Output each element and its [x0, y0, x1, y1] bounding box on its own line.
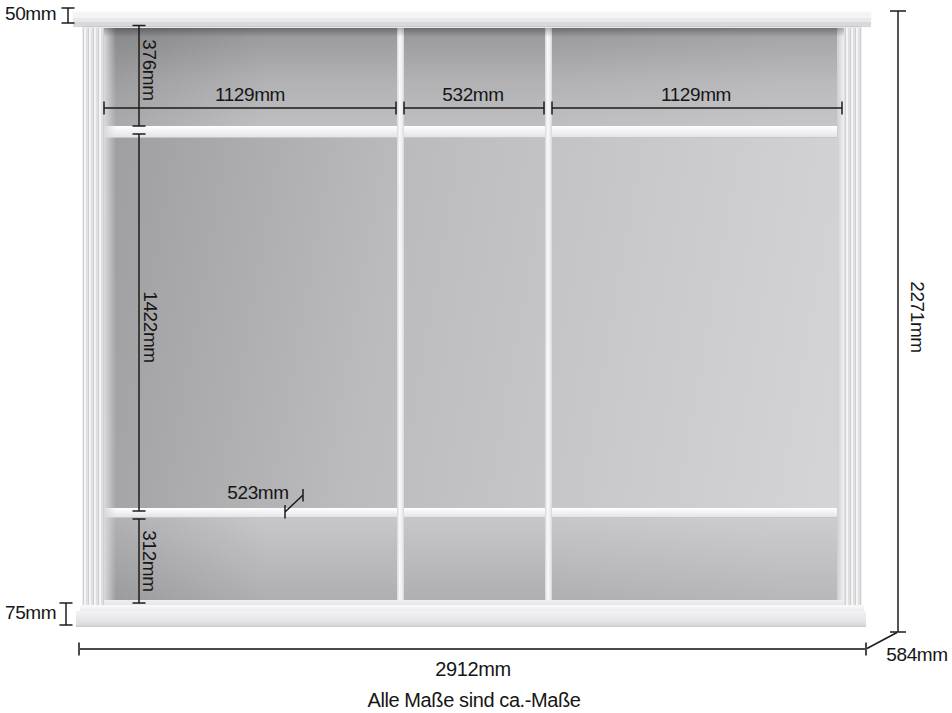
bottom-row-shading	[104, 518, 844, 600]
shelf-depth-label: 523mm	[227, 482, 288, 503]
under-crown-shadow	[104, 28, 844, 37]
interior-left-wall	[104, 28, 116, 600]
left-compartment-width-label: 1129mm	[215, 84, 285, 105]
middle-compartment-width-label: 532mm	[442, 84, 503, 105]
crown-height-label: 50mm	[5, 3, 56, 24]
total-width-label: 2912mm	[435, 659, 510, 680]
main-compartment-row	[104, 138, 844, 508]
bottom-compartment-height-label: 312mm	[139, 530, 160, 591]
wardrobe-dimension-diagram: 50mm 376mm 1129mm 532mm 1129mm 1422mm 52…	[0, 0, 952, 713]
lower-shelf	[104, 508, 844, 518]
top-compartment-height-label: 376mm	[139, 39, 160, 100]
dim-line-total-width	[79, 643, 866, 656]
dim-line-total-height	[890, 11, 906, 632]
right-compartment-width-label: 1129mm	[661, 84, 731, 105]
left-fluted-column	[83, 28, 104, 605]
plinth-height-label: 75mm	[5, 602, 56, 623]
top-row-shading	[104, 28, 844, 126]
upper-shelf	[104, 126, 844, 138]
vertical-divider-right	[545, 28, 552, 600]
vertical-divider-left	[397, 28, 404, 600]
dim-line-plinth-height	[60, 603, 73, 625]
interior-right-wall	[837, 28, 844, 600]
wardrobe-interior	[104, 28, 844, 607]
plinth	[76, 611, 866, 627]
total-height-label: 2271mm	[907, 281, 928, 353]
wardrobe-crown-molding	[73, 10, 871, 26]
total-depth-label: 584mm	[886, 644, 947, 665]
measurements-note: Alle Maße sind ca.-Maße	[367, 690, 580, 711]
main-compartment-height-label: 1422mm	[140, 291, 161, 363]
